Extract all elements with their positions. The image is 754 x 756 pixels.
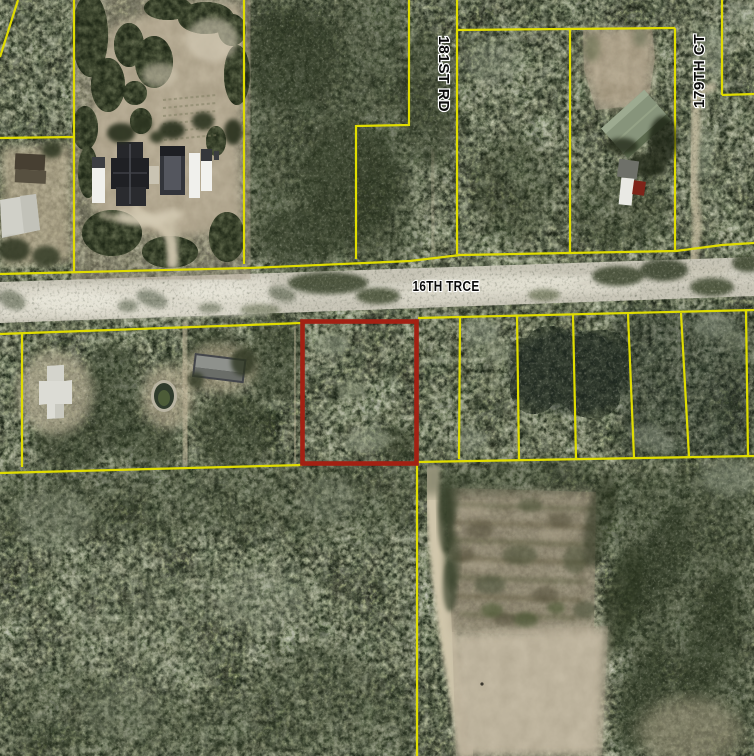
svg-text:16TH TRCE: 16TH TRCE [413, 279, 480, 295]
svg-text:181ST RD: 181ST RD [435, 36, 451, 112]
svg-text:179TH CT: 179TH CT [692, 34, 708, 108]
